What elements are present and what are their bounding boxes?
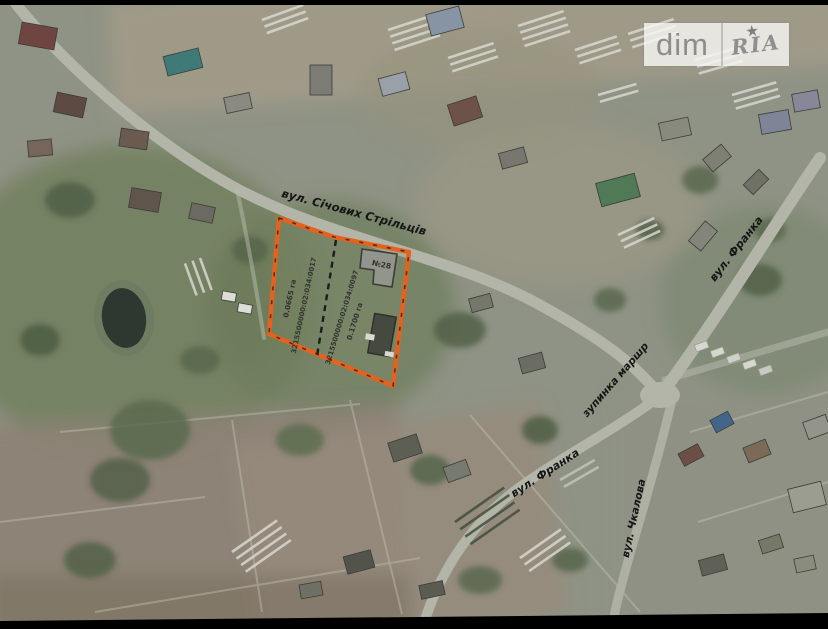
top-letterbox-bar [0,0,828,5]
dim-ria-watermark: dim ★ RIA [644,23,789,66]
ria-star-icon: ★ [746,25,759,39]
ria-logo: ★ RIA [723,23,789,66]
listing-map-screenshot: 0.0665 га 3215500000:02:034:0017 3215500… [0,0,828,629]
dim-logo-text: dim [644,23,721,66]
satellite-map[interactable]: 0.0665 га 3215500000:02:034:0017 3215500… [0,0,828,629]
